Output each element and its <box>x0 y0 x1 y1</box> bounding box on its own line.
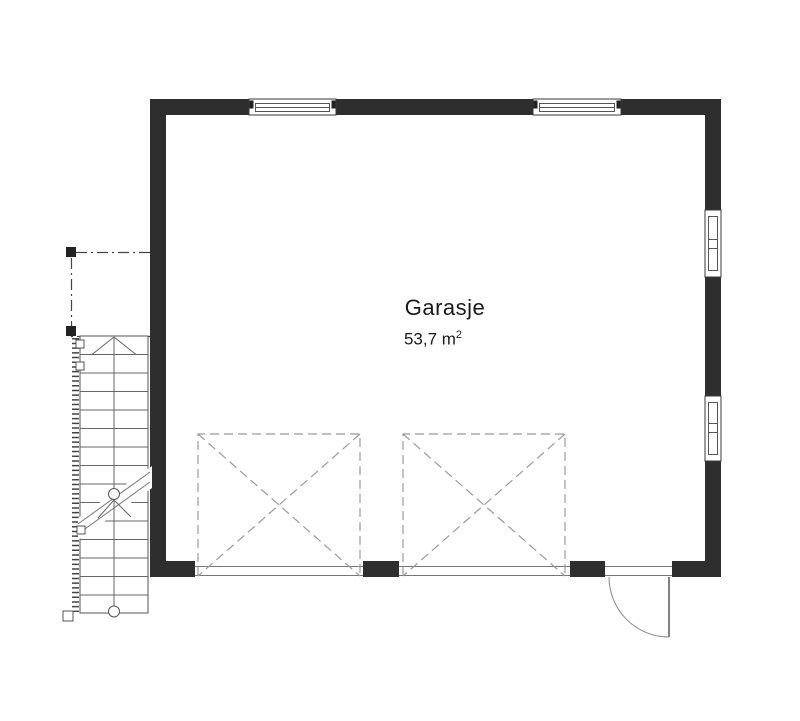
bottom-wall-segment <box>570 561 605 577</box>
window-top-left <box>249 99 336 115</box>
floor-plan: Garasje 53,7 m2 <box>0 0 800 721</box>
walk-line-circle-upper <box>109 489 120 500</box>
room-name-label: Garasje <box>345 295 545 321</box>
right-wall <box>705 99 721 577</box>
door-swing-arc <box>609 577 669 637</box>
exterior-staircase <box>63 336 152 621</box>
window-right-lower <box>705 396 721 461</box>
top-wall <box>150 99 721 115</box>
room-area-exponent: 2 <box>456 329 462 341</box>
bottom-wall-segment <box>672 561 721 577</box>
roof-overhang-outline <box>72 253 151 337</box>
room-area-label: 53,7 m2 <box>333 329 533 350</box>
post-lower <box>66 326 76 336</box>
walk-line-circle-lower <box>109 606 120 617</box>
room-area-value: 53,7 m <box>404 330 456 349</box>
garage-door-zone-2 <box>403 434 565 576</box>
entry-door-swing <box>609 577 669 637</box>
window-right-upper <box>705 210 721 277</box>
garage-door-zone-1 <box>198 434 360 576</box>
left-wall <box>150 99 166 577</box>
post-upper <box>66 247 76 257</box>
floor-plan-drawing <box>0 0 800 721</box>
bottom-wall-segment <box>363 561 399 577</box>
bottom-wall-segment <box>150 561 195 577</box>
window-top-right <box>533 99 621 115</box>
